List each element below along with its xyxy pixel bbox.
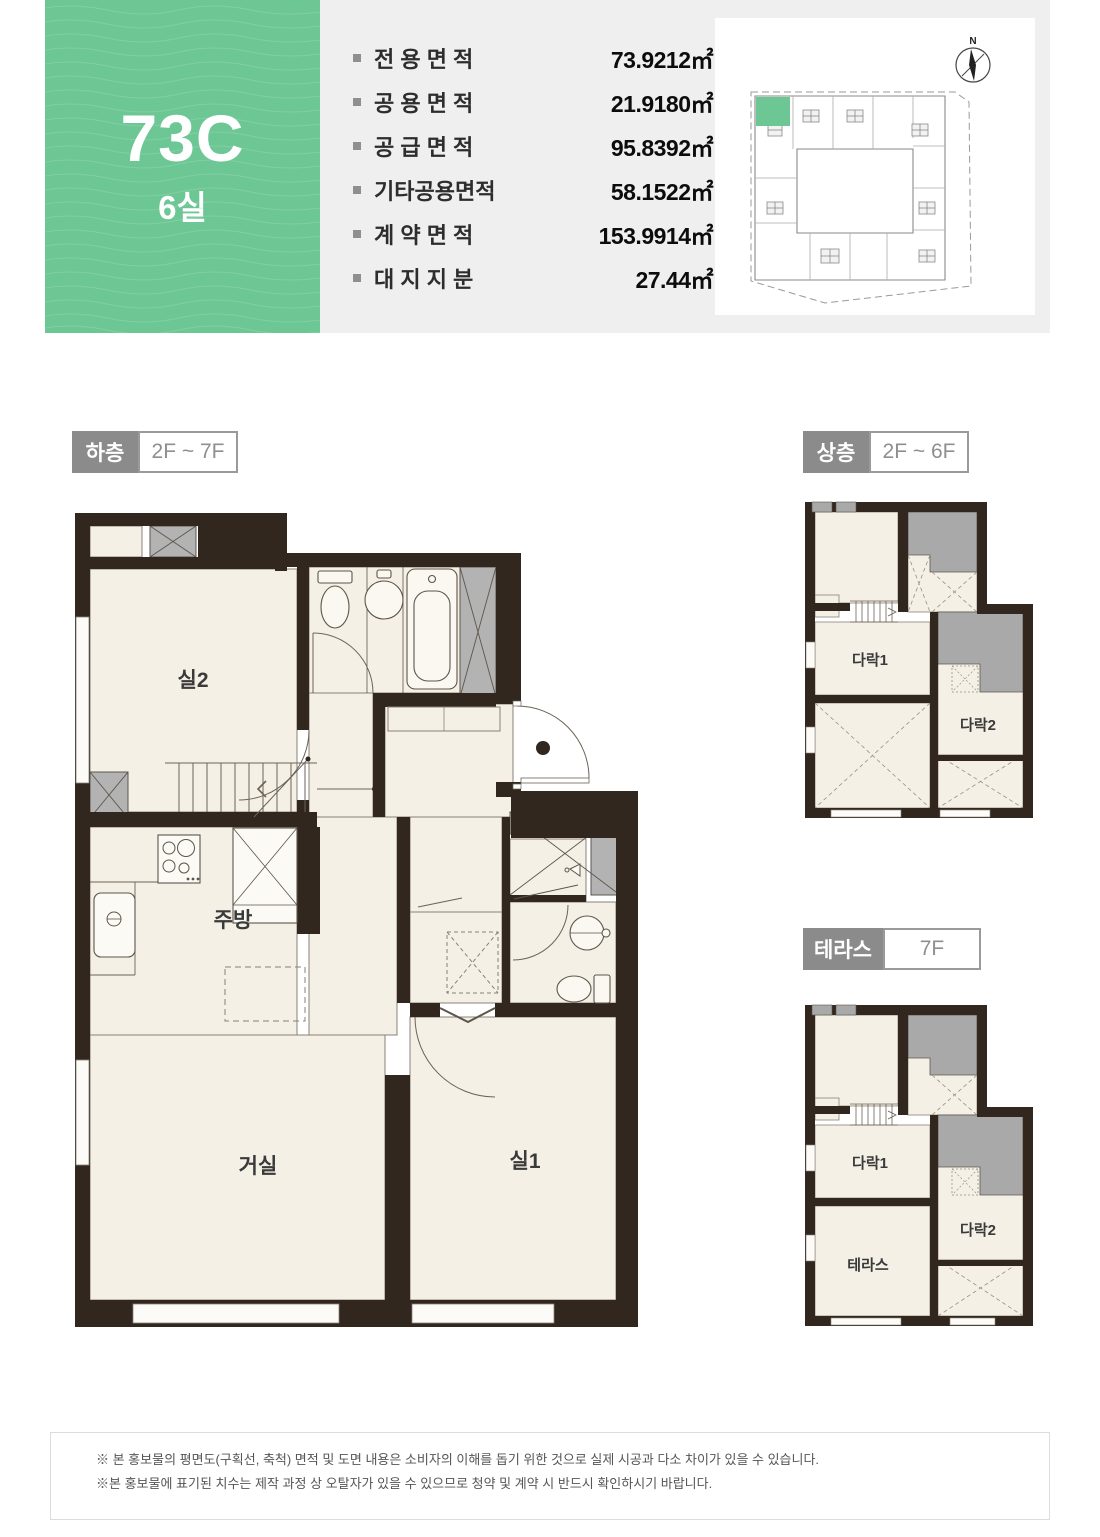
spec-label: 기타공용면적 — [374, 174, 534, 206]
terrace-label: 테라스 — [847, 1257, 889, 1274]
badge-title: 하층 — [72, 431, 138, 473]
spec-row: 전 용 면 적 73.9212㎡ — [353, 36, 713, 80]
spec-row: 공 급 면 적 95.8392㎡ — [353, 124, 713, 168]
bullet-icon — [353, 54, 361, 62]
spec-label: 계 약 면 적 — [374, 218, 534, 250]
spec-row: 기타공용면적 58.1522㎡ — [353, 168, 713, 212]
disclaimer-box: ※ 본 홍보물의 평면도(구획선, 축척) 면적 및 도면 내용은 소비자의 이… — [50, 1432, 1050, 1520]
highlighted-unit — [756, 97, 790, 126]
bullet-icon — [353, 186, 361, 194]
spec-value: 58.1522㎡ — [534, 173, 713, 207]
bullet-icon — [353, 98, 361, 106]
spec-value: 27.44㎡ — [534, 261, 713, 295]
unit-room-count: 6실 — [158, 181, 207, 229]
lower-floor-plan: 실2 주방 거실 실1 — [70, 505, 650, 1340]
badge-floors: 7F — [883, 928, 981, 970]
room1-label: 실1 — [510, 1150, 541, 1173]
room2-label: 실2 — [178, 669, 209, 692]
spec-label: 대 지 지 분 — [374, 262, 534, 294]
area-spec-list: 전 용 면 적 73.9212㎡ 공 용 면 적 21.9180㎡ 공 급 면 … — [353, 36, 713, 300]
bullet-icon — [353, 230, 361, 238]
svg-text:N: N — [969, 36, 976, 47]
lower-floor-badge: 하층 2F ~ 7F — [72, 431, 238, 473]
spec-label: 전 용 면 적 — [374, 42, 534, 74]
disclaimer-line-2: ※본 홍보물에 표기된 치수는 제작 과정 상 오탈자가 있을 수 있으므로 청… — [96, 1472, 1029, 1496]
attic2-label: 다락2 — [960, 1221, 996, 1239]
spec-row: 대 지 지 분 27.44㎡ — [353, 256, 713, 300]
attic2-label: 다락2 — [960, 716, 996, 734]
bullet-icon — [353, 142, 361, 150]
spec-row: 공 용 면 적 21.9180㎡ — [353, 80, 713, 124]
unit-code: 73C — [120, 105, 244, 171]
bullet-icon — [353, 274, 361, 282]
upper-floor-badge: 상층 2F ~ 6F — [803, 431, 969, 473]
badge-title: 상층 — [803, 431, 869, 473]
attic1-label: 다락1 — [852, 1154, 888, 1172]
spec-label: 공 용 면 적 — [374, 86, 534, 118]
kitchen-label: 주방 — [214, 909, 253, 932]
spec-value: 21.9180㎡ — [534, 85, 713, 119]
disclaimer-line-1: ※ 본 홍보물의 평면도(구획선, 축척) 면적 및 도면 내용은 소비자의 이… — [96, 1448, 1029, 1472]
upper-floor-plan: 다락1 다락2 — [800, 492, 1040, 832]
living-label: 거실 — [239, 1155, 278, 1178]
spec-value: 95.8392㎡ — [534, 129, 713, 163]
living-area — [90, 1035, 385, 1300]
header-panel: 73C 6실 전 용 면 적 73.9212㎡ 공 용 면 적 21.9180㎡… — [45, 0, 1050, 333]
badge-floors: 2F ~ 6F — [869, 431, 969, 473]
badge-title: 테라스 — [803, 928, 883, 970]
entrance-door — [513, 701, 589, 789]
spec-value: 73.9212㎡ — [534, 41, 713, 75]
site-key-plan: N — [715, 18, 1035, 315]
spec-value: 153.9914㎡ — [534, 217, 713, 251]
attic1-label: 다락1 — [852, 651, 888, 669]
terrace-floor-plan: 다락1 다락2 테라스 — [800, 995, 1040, 1340]
brochure-page: 73C 6실 전 용 면 적 73.9212㎡ 공 용 면 적 21.9180㎡… — [0, 0, 1100, 1537]
unit-type-box: 73C 6실 — [45, 0, 320, 333]
terrace-badge: 테라스 7F — [803, 928, 981, 970]
spec-label: 공 급 면 적 — [374, 130, 534, 162]
compass-icon: N — [956, 36, 990, 82]
spec-row: 계 약 면 적 153.9914㎡ — [353, 212, 713, 256]
badge-floors: 2F ~ 7F — [138, 431, 238, 473]
